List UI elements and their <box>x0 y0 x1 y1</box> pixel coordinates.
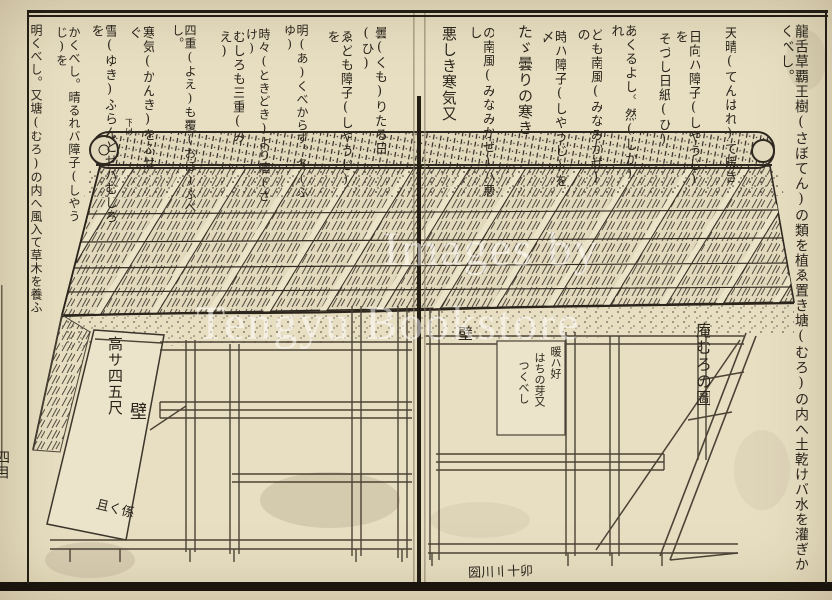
left-text-column-9: かくべし。晴るれバ障子(しやうじ)を <box>56 26 80 234</box>
right-wall-label: 壁 <box>448 326 472 350</box>
left-text-column-5: むしろも三重(みえ) <box>220 30 244 165</box>
right-text-column-1: 龍舌草覇王樹(さぼてん)の類を植ゑ置き塘(むろ)の内へ土乾けバ水を灌ぎかくべし。 <box>784 24 808 582</box>
left-text-column-2: ゑども障子(しやうじ)を <box>328 30 352 190</box>
diagonal-brace <box>596 340 740 550</box>
adjacent-page-edge-line <box>1 285 3 475</box>
left-text-column-4: 時々(ときどき)より酒(さけ) <box>246 28 270 206</box>
cropped-edge-characters: 四目 <box>0 450 9 506</box>
right-text-column-5: あくるよし。然(しか)れ <box>612 24 636 184</box>
book-spread-scan: 龍舌草覇王樹(さぼてん)の類を植ゑ置き塘(むろ)の内へ土乾けバ水を灌ぎかくべし。… <box>0 0 832 600</box>
corner-collation-mark: 圀川〢十卯 <box>468 560 534 581</box>
right-text-column-2: 天晴(てんはれ)て暖き <box>712 26 736 191</box>
right-text-column-9: の南風(みなみかぜ)ハ悪し <box>470 26 494 198</box>
ridge-small-note: 下け <box>117 118 132 144</box>
height-dimension-label: 高サ四五尺 <box>98 336 122 466</box>
right-text-column-6: ども南風(みなみかぜ)の <box>578 28 602 188</box>
illustration-caption: 庵むろの圖 <box>686 322 710 422</box>
left-text-column-7: 寒気(かんき)をふせぐ <box>130 26 154 172</box>
left-text-column-10: 明くべし。又塘(むろ)の内へ風入て草木を養ふ <box>18 24 42 324</box>
left-text-column-8: 雪(ゆき)ふらんとせバむしろを <box>92 24 116 224</box>
ridge-log-end-right <box>752 140 774 162</box>
left-text-column-1: 曇(くも)りたる日(ひ) <box>362 26 386 174</box>
note-line-1: 暖ハ好 <box>546 346 561 396</box>
right-text-column-3: 日向ハ障子(しやうじ)を <box>676 30 700 190</box>
left-text-column-3: 明(あ)くべからず。冬(ふゆ) <box>284 24 308 210</box>
note-line-2: はちの芽又 <box>530 352 545 424</box>
left-wall-label: 壁 <box>122 402 146 428</box>
left-text-column-6: 四重(よえ)も覆(おほ)ふべし。 <box>172 24 196 220</box>
right-text-column-8: たゞ曇りの寒き <box>508 24 532 142</box>
right-text-column-10: 悪しき寒気又 <box>432 26 456 138</box>
right-text-column-7: 時ハ障子(しやうじ)を〆 <box>542 30 566 192</box>
right-text-column-4: そづし日紙(ひ) <box>646 32 670 154</box>
note-line-3: つくべし <box>514 360 529 420</box>
